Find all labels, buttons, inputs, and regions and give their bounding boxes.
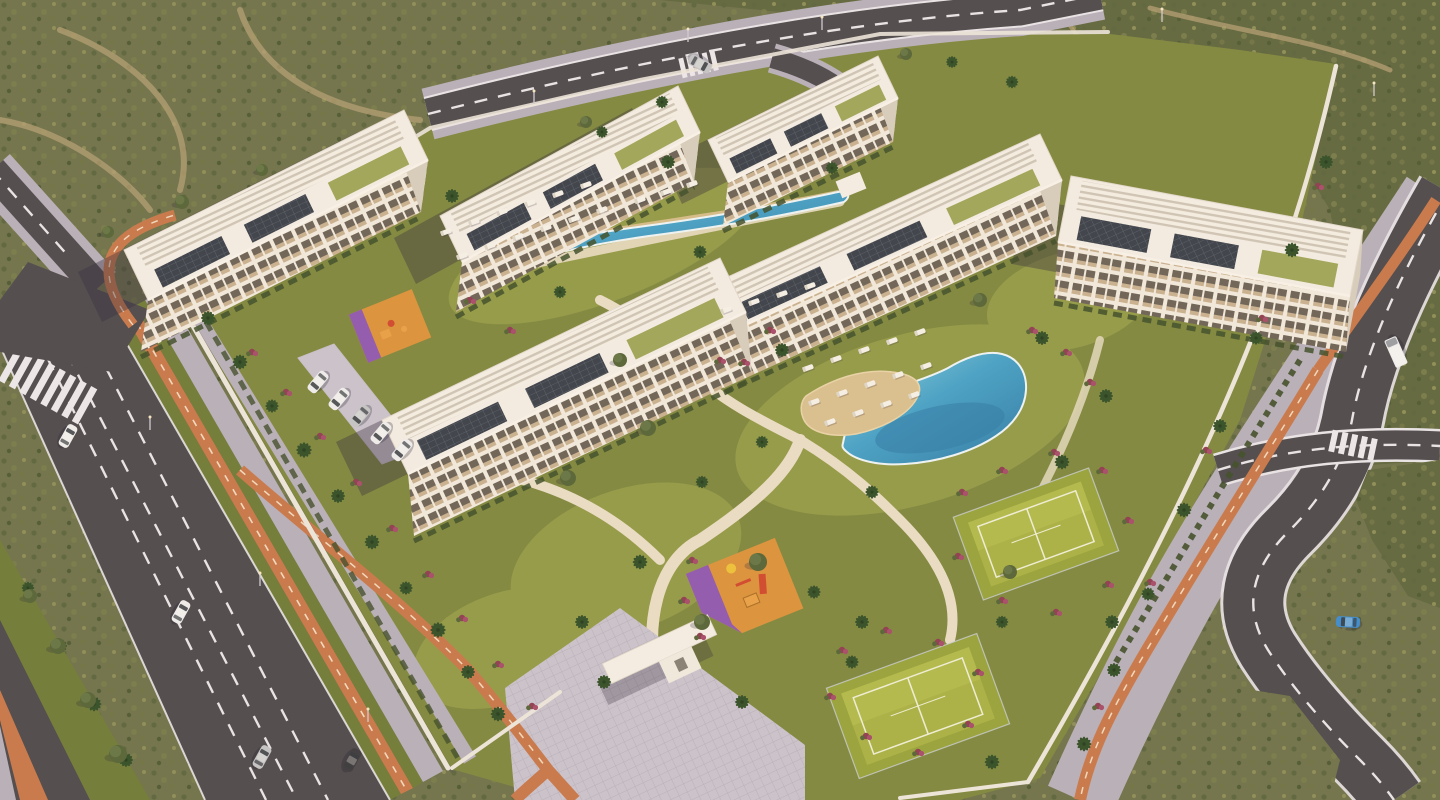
scene-canvas xyxy=(0,0,1440,800)
aerial-render xyxy=(0,0,1440,800)
warm-light-overlay xyxy=(0,0,1440,800)
